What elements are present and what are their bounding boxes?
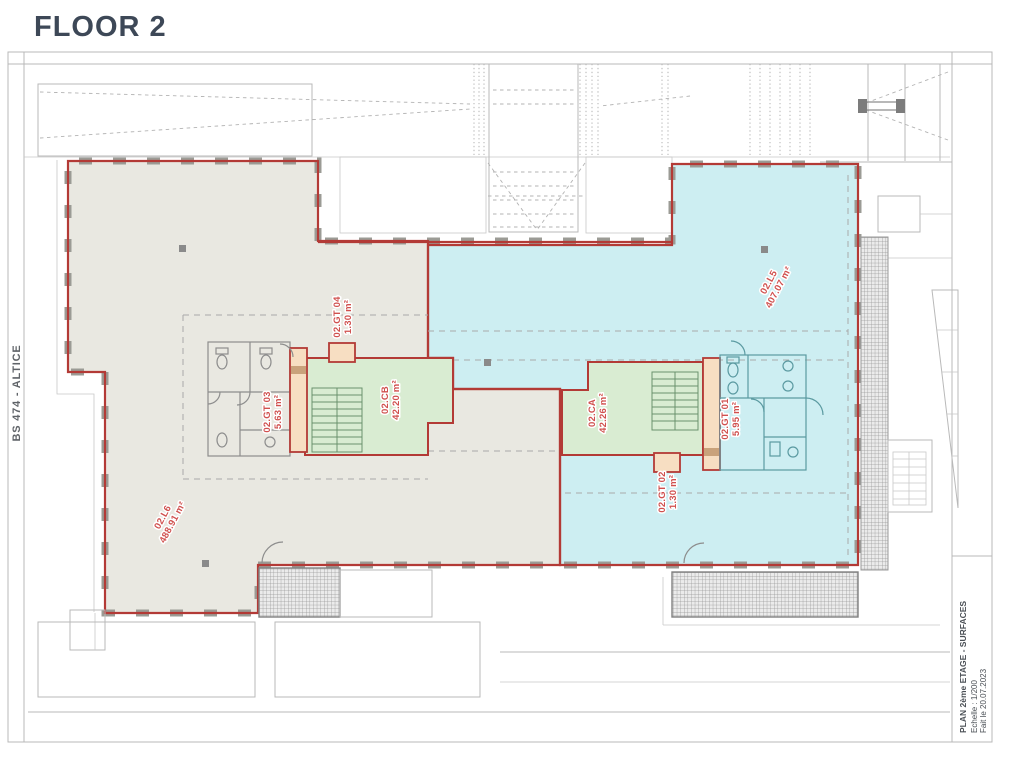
room-id: 02.CB	[380, 386, 391, 414]
room-area: 5.63 m²	[273, 395, 284, 429]
room-area: 42.26 m²	[598, 393, 609, 433]
sheet-side-label: BS 474 - ALTICE	[11, 345, 23, 442]
page-title: FLOOR 2	[34, 11, 167, 43]
title-block-line1: PLAN 2ème ETAGE - SURFACES	[958, 601, 968, 733]
room-area: 42.20 m²	[391, 380, 402, 420]
beam-end	[858, 99, 867, 113]
roof-dotted-strips	[474, 64, 810, 157]
room-id: 02.GT 02	[657, 471, 668, 512]
column	[179, 245, 186, 252]
room-id: 02.GT 01	[720, 398, 731, 440]
label-gt04: 02.GT 04 1.30 m²	[332, 296, 354, 338]
label-gt02: 02.GT 02 1.30 m²	[657, 471, 679, 512]
zones	[68, 161, 858, 613]
room-id: 02.GT 03	[262, 391, 273, 432]
shaft-gt04	[329, 343, 355, 362]
title-block-line3: Fait le 20.07.2023	[979, 668, 988, 733]
shaft-gt02	[654, 453, 680, 472]
column	[202, 560, 209, 567]
room-id: 02.GT 04	[332, 296, 343, 338]
terrace-left-open	[340, 570, 432, 617]
shaft-gt03	[290, 348, 307, 452]
room-id: 02.CA	[587, 399, 598, 427]
title-block: PLAN 2ème ETAGE - SURFACES Echelle : 1/2…	[958, 601, 988, 733]
label-cb: 02.CB 42.20 m²	[380, 380, 402, 420]
exterior-stair-block	[888, 440, 932, 512]
column	[761, 246, 768, 253]
label-gt01: 02.GT 01 5.95 m²	[720, 398, 742, 440]
floor-plan-canvas: FLOOR 2	[0, 0, 1024, 768]
shaft-gt01-duct	[704, 448, 719, 456]
label-ca: 02.CA 42.26 m²	[587, 393, 609, 433]
column	[484, 359, 491, 366]
shaft-gt03-duct	[291, 366, 306, 374]
terrace-right-hatched	[672, 572, 858, 617]
title-block-line2: Echelle : 1/200	[970, 680, 979, 733]
beam-end	[896, 99, 905, 113]
skylight-ladder	[493, 90, 574, 227]
label-gt03: 02.GT 03 5.63 m²	[262, 391, 284, 432]
room-area: 1.30 m²	[343, 300, 354, 334]
east-hatched-strip	[861, 237, 888, 570]
room-area: 5.95 m²	[731, 402, 742, 436]
room-area: 1.30 m²	[668, 475, 679, 509]
terrace-left-hatched	[259, 568, 340, 617]
escape-stair-wedge	[932, 290, 958, 508]
